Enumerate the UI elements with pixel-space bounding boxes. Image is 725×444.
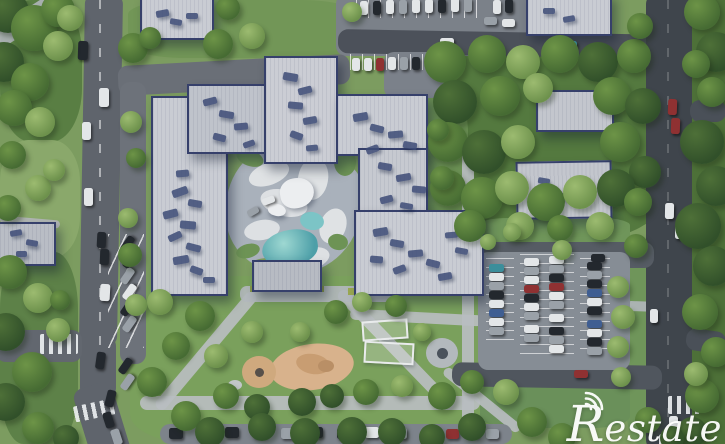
restate-logo-signal-arcs-icon [583,388,609,416]
tree [320,384,344,408]
tree [427,119,449,141]
car [587,329,602,337]
car [489,264,504,272]
car [587,307,602,315]
tree [162,332,190,360]
tree [493,379,519,405]
tree [578,42,618,82]
tree [53,425,79,444]
tree [495,171,529,205]
car [549,301,564,309]
tree [547,215,573,241]
tree [586,212,614,240]
car [489,327,504,335]
tree [624,188,652,216]
car [549,336,564,344]
car [667,99,677,115]
car [549,327,564,335]
car [574,370,588,378]
vent [234,122,249,130]
tree [239,23,265,49]
tree [12,352,52,392]
tree [385,295,407,317]
car [524,334,539,342]
car [400,57,408,70]
tree [57,5,83,31]
complex-east-slab [358,148,428,218]
tree [204,344,228,368]
car [399,0,407,14]
car [502,19,515,27]
vent [408,249,424,257]
car [549,265,564,273]
car [524,276,539,284]
tree [43,31,73,61]
car [489,318,504,326]
car [388,57,396,70]
complex-northwest-slab [187,84,271,154]
tree [480,76,520,116]
vent [288,101,304,109]
tree [195,417,225,444]
tree [607,276,629,298]
tree [607,336,629,358]
aerial-residential-complex-render: Restate [0,0,725,444]
car [464,0,472,12]
car [84,188,93,206]
car [489,291,504,299]
tree [424,41,466,83]
car [489,282,504,290]
car [489,273,504,281]
tree [600,122,640,162]
car [524,267,539,275]
car [425,0,433,13]
tree [480,234,496,250]
vent [186,13,198,19]
tree [624,234,648,258]
car [524,258,539,266]
car [364,58,372,71]
watermark-rest: estate [604,414,722,444]
car [549,314,564,322]
tree [517,407,547,437]
car [99,249,109,265]
tree [627,13,653,39]
car [587,289,602,297]
car [587,262,602,270]
tree [23,283,53,313]
tree [126,148,146,168]
car [373,1,381,15]
tree [693,246,725,286]
tree [288,388,316,416]
tree [428,382,456,410]
perg [361,318,408,341]
tree [563,175,597,209]
car [524,325,539,333]
dash [667,0,669,444]
tree [523,73,553,103]
tree [468,35,506,73]
car [352,58,360,71]
perg [363,341,414,366]
tree [50,290,70,310]
car [493,0,501,14]
tree [460,370,484,394]
car [650,309,658,323]
car [225,427,239,438]
car [99,88,109,107]
tree [43,159,65,181]
tree [617,39,651,73]
car [549,345,564,353]
car [96,232,106,248]
vent [203,277,215,283]
tree [203,29,233,59]
car [549,292,564,300]
car [587,280,602,288]
tree [324,300,348,324]
tree [680,120,724,164]
vent [180,220,197,229]
tree [118,208,138,228]
car [670,118,680,134]
tree [139,27,161,49]
tree [684,362,708,386]
tree [462,130,506,174]
car [664,203,673,219]
tree [118,243,142,267]
car [100,283,111,301]
tree [391,375,413,397]
tree [137,367,167,397]
tree [611,305,635,329]
car [587,347,602,355]
tree [611,367,631,387]
car [549,274,564,282]
tree [419,424,445,444]
car [438,0,446,13]
tree [185,301,215,331]
car [549,283,564,291]
tree [625,88,661,124]
car [524,303,539,311]
car [489,309,504,317]
tree [682,294,718,330]
car [524,294,539,302]
car [489,300,504,308]
vent [306,144,318,151]
tree [352,292,372,312]
tree [501,125,535,159]
car [365,427,379,438]
tree [241,321,263,343]
car [82,122,91,140]
tree [675,203,721,249]
tree [378,418,406,444]
tree [248,413,276,441]
car [412,57,420,70]
tree [120,111,142,133]
car [524,312,539,320]
tree [413,323,431,341]
tree [22,412,54,444]
car [446,429,459,439]
car [505,0,513,13]
tree [337,417,367,444]
tree [503,223,521,241]
car [591,254,605,262]
car [587,271,602,279]
tree [430,166,454,190]
tree [353,379,379,405]
car [412,0,420,13]
vent [370,255,384,263]
vent [176,169,190,177]
tree [147,289,173,315]
tree [342,2,362,22]
vent [543,8,555,14]
tree [125,294,147,316]
car [587,320,602,328]
tree [433,80,477,124]
tree [552,240,572,260]
car [376,58,384,71]
tree [46,318,70,342]
restate-watermark: Restate [567,405,722,444]
car [587,338,602,346]
tree [458,413,486,441]
car [524,285,539,293]
tree [541,35,579,73]
car [94,351,105,369]
tree [290,418,320,444]
tree [213,383,239,409]
vent [412,185,427,193]
car [78,40,89,59]
car [484,17,497,25]
complex-garden-pavilion [252,260,322,292]
disc [437,348,448,359]
vent [388,130,404,138]
tree [701,337,725,367]
car [587,298,602,306]
tree [697,77,725,107]
car [486,429,499,439]
car [386,0,394,14]
complex-north-slab [264,56,338,164]
car [451,0,459,12]
tree [682,50,710,78]
disc [255,368,264,377]
tree [25,107,55,137]
disc [318,360,334,372]
tree [290,322,310,342]
